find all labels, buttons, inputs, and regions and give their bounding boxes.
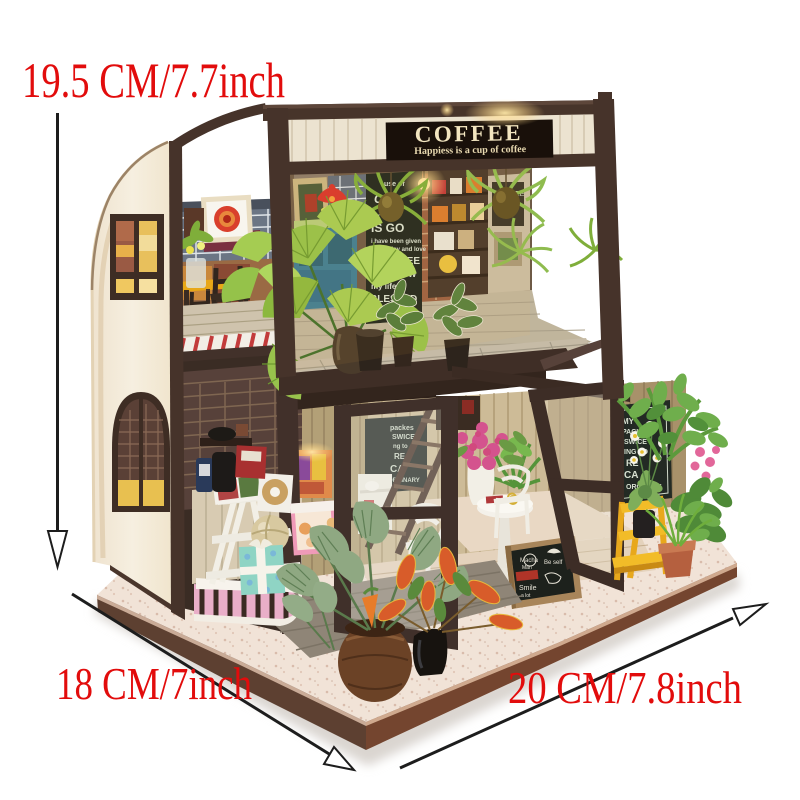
svg-text:Macha: Macha	[520, 558, 539, 564]
svg-text:a lot: a lot	[521, 593, 531, 599]
svg-text:CA: CA	[624, 470, 638, 481]
svg-text:Happiess is a cup of coffee: Happiess is a cup of coffee	[414, 144, 527, 157]
svg-text:Man: Man	[522, 565, 532, 571]
svg-text:18 CM/7inch: 18 CM/7inch	[56, 658, 252, 709]
svg-text:20 CM/7.8inch: 20 CM/7.8inch	[508, 662, 742, 713]
svg-text:Be self: Be self	[544, 560, 563, 566]
svg-text:19.5 CM/7.7inch: 19.5 CM/7.7inch	[22, 52, 285, 108]
svg-text:Smile: Smile	[519, 585, 537, 592]
